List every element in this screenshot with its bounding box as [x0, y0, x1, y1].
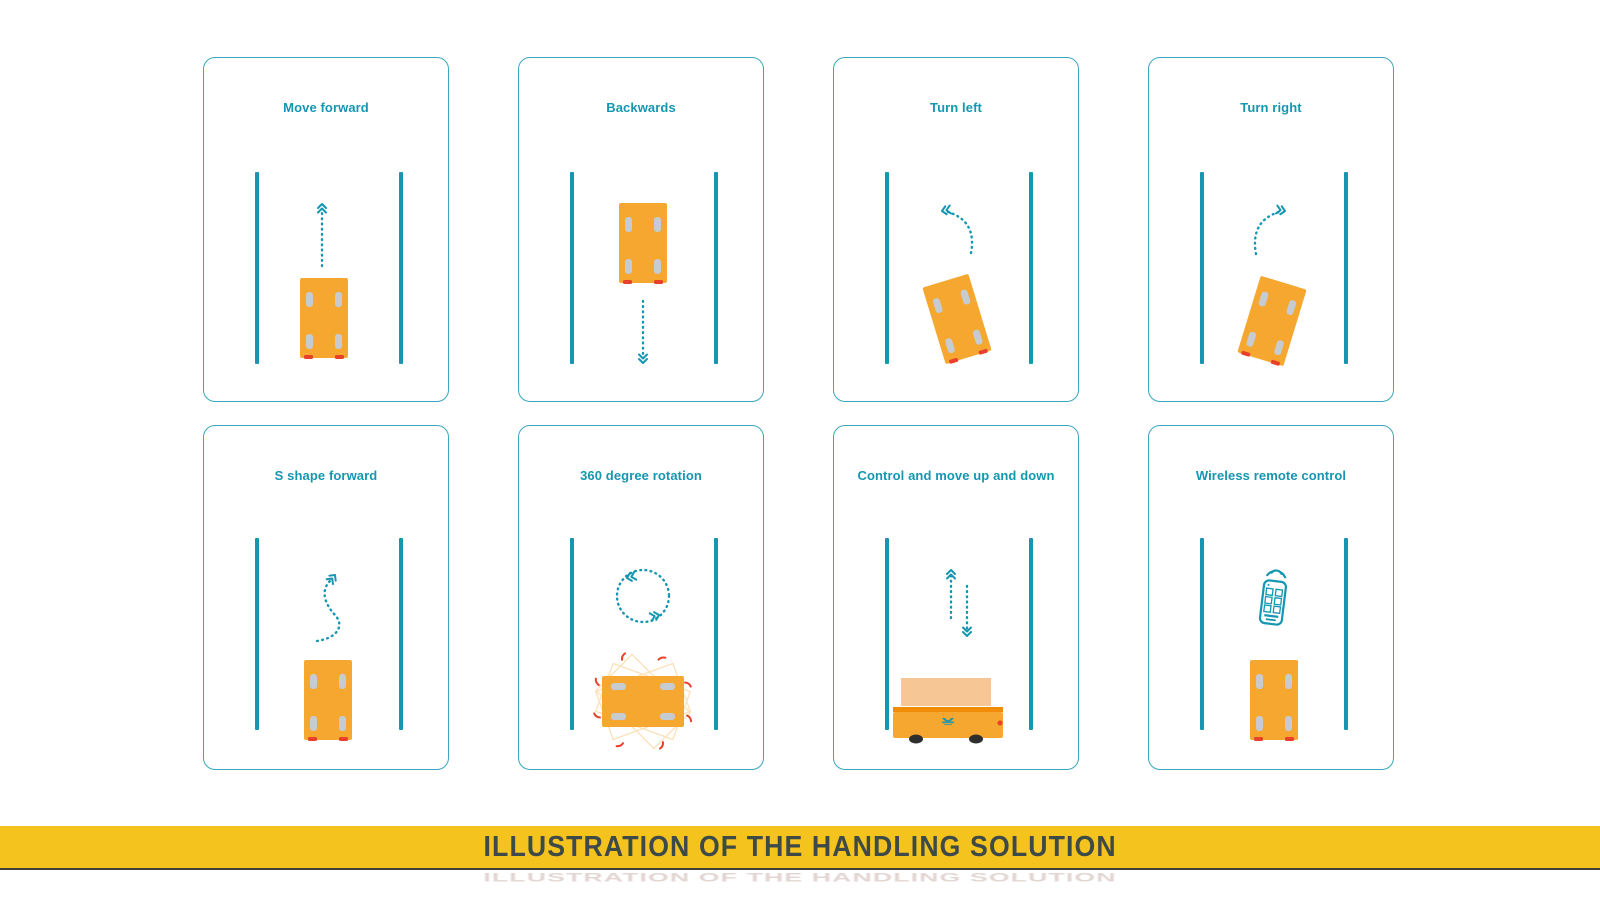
arrow-down-head-icon: [639, 355, 647, 364]
panel-up-down: Control and move up and down: [833, 425, 1079, 770]
panel-title: 360 degree rotation: [519, 468, 763, 483]
wheel-icon: [909, 735, 923, 744]
panel-wireless-remote: Wireless remote control: [1148, 425, 1394, 770]
panel-title: Wireless remote control: [1149, 468, 1393, 483]
curved-arrow-left-icon: [948, 212, 972, 253]
banner-title: ILLUSTRATION OF THE HANDLING SOLUTION: [483, 831, 1116, 864]
lane-line-left: [885, 172, 889, 364]
agv-top-icon: [619, 203, 667, 284]
lane-line-right: [1029, 538, 1033, 730]
lane-line-right: [1344, 172, 1348, 364]
lane-line-right: [1344, 538, 1348, 730]
lifted-load-platform: [901, 678, 991, 706]
remote-control-icon: [1259, 569, 1287, 625]
panel-title: Control and move up and down: [834, 468, 1078, 483]
lane-line-left: [570, 538, 574, 730]
s-path-icon: [317, 580, 339, 641]
banner: ILLUSTRATION OF THE HANDLING SOLUTION: [0, 826, 1600, 870]
agv-top-landscape-icon: [602, 676, 684, 727]
panel-360-rotation: 360 degree rotation: [518, 425, 764, 770]
lane-line-left: [255, 538, 259, 730]
banner-reflection: ILLUSTRATION OF THE HANDLING SOLUTION: [64, 871, 1536, 885]
lane-line-right: [1029, 172, 1033, 364]
curved-arrow-right-head-icon: [1276, 206, 1286, 215]
wifi-signal-icon: [1267, 569, 1286, 577]
panel-turn-right: Turn right: [1148, 57, 1394, 402]
lane-line-left: [1200, 538, 1204, 730]
lane-line-left: [885, 538, 889, 730]
agv-top-icon: [1250, 660, 1298, 741]
lane-line-right: [399, 538, 403, 730]
panel-s-shape-forward: S shape forward: [203, 425, 449, 770]
panel-move-forward: Move forward: [203, 57, 449, 402]
wheel-icon: [969, 735, 983, 744]
lane-line-right: [714, 172, 718, 364]
agv-top-icon: [922, 274, 992, 365]
panel-title: Turn left: [834, 100, 1078, 115]
panel-title: S shape forward: [204, 468, 448, 483]
lane-line-left: [255, 172, 259, 364]
lift-plate: [893, 707, 1003, 712]
arrow-up-head-icon: [318, 204, 326, 213]
curved-arrow-left-head-icon: [941, 206, 951, 215]
lane-line-right: [399, 172, 403, 364]
agv-side-icon: [893, 678, 1003, 744]
agv-top-icon: [1237, 276, 1307, 367]
panel-turn-left: Turn left: [833, 57, 1079, 402]
panel-backwards: Backwards: [518, 57, 764, 402]
lane-line-left: [1200, 172, 1204, 364]
lane-line-right: [714, 538, 718, 730]
rotation-circle-icon: [617, 570, 669, 622]
panel-title: Turn right: [1149, 100, 1393, 115]
panel-title: Backwards: [519, 100, 763, 115]
curved-arrow-right-icon: [1255, 212, 1279, 254]
agv-top-icon: [300, 278, 348, 359]
agv-top-icon: [304, 660, 352, 741]
panel-title: Move forward: [204, 100, 448, 115]
lane-line-left: [570, 172, 574, 364]
stop-button-icon: [998, 721, 1003, 726]
